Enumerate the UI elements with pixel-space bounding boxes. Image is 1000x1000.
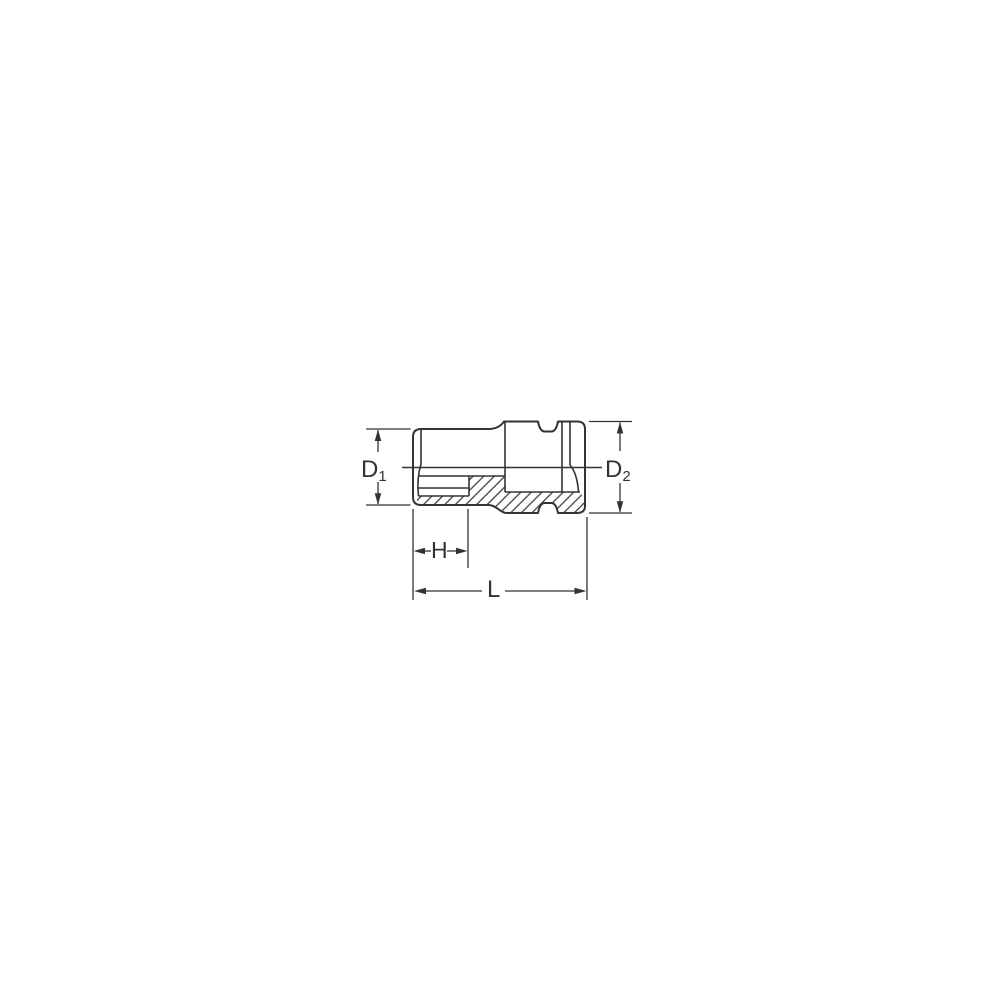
l-arrow-right-icon	[575, 588, 587, 595]
section-hatching	[417, 476, 585, 513]
socket-diagram: D1 D2 H L	[0, 0, 1000, 1000]
left-face-chamfer-line	[418, 430, 421, 496]
d1-arrow-up-icon	[375, 430, 382, 442]
h-arrow-left-icon	[414, 548, 426, 555]
dimension-l	[425, 517, 587, 600]
h-label: H	[431, 537, 448, 563]
right-face-chamfer-line	[570, 422, 579, 492]
d1-label: D1	[361, 456, 387, 485]
d2-arrow-up-icon	[617, 422, 624, 434]
d2-arrow-down-icon	[617, 501, 624, 513]
hatch-region-left-wall	[417, 496, 469, 505]
h-arrow-right-icon	[456, 548, 468, 555]
drawing-lines: D1 D2 H L	[361, 422, 632, 604]
l-label: L	[487, 576, 500, 603]
page-background: D1 D2 H L	[0, 0, 1000, 1000]
d1-arrow-down-icon	[375, 493, 382, 505]
hatch-region-right-wall	[562, 492, 585, 513]
l-arrow-left-icon	[414, 588, 426, 595]
d2-label: D2	[605, 456, 631, 485]
hatch-region-mid-wall	[469, 476, 505, 512]
